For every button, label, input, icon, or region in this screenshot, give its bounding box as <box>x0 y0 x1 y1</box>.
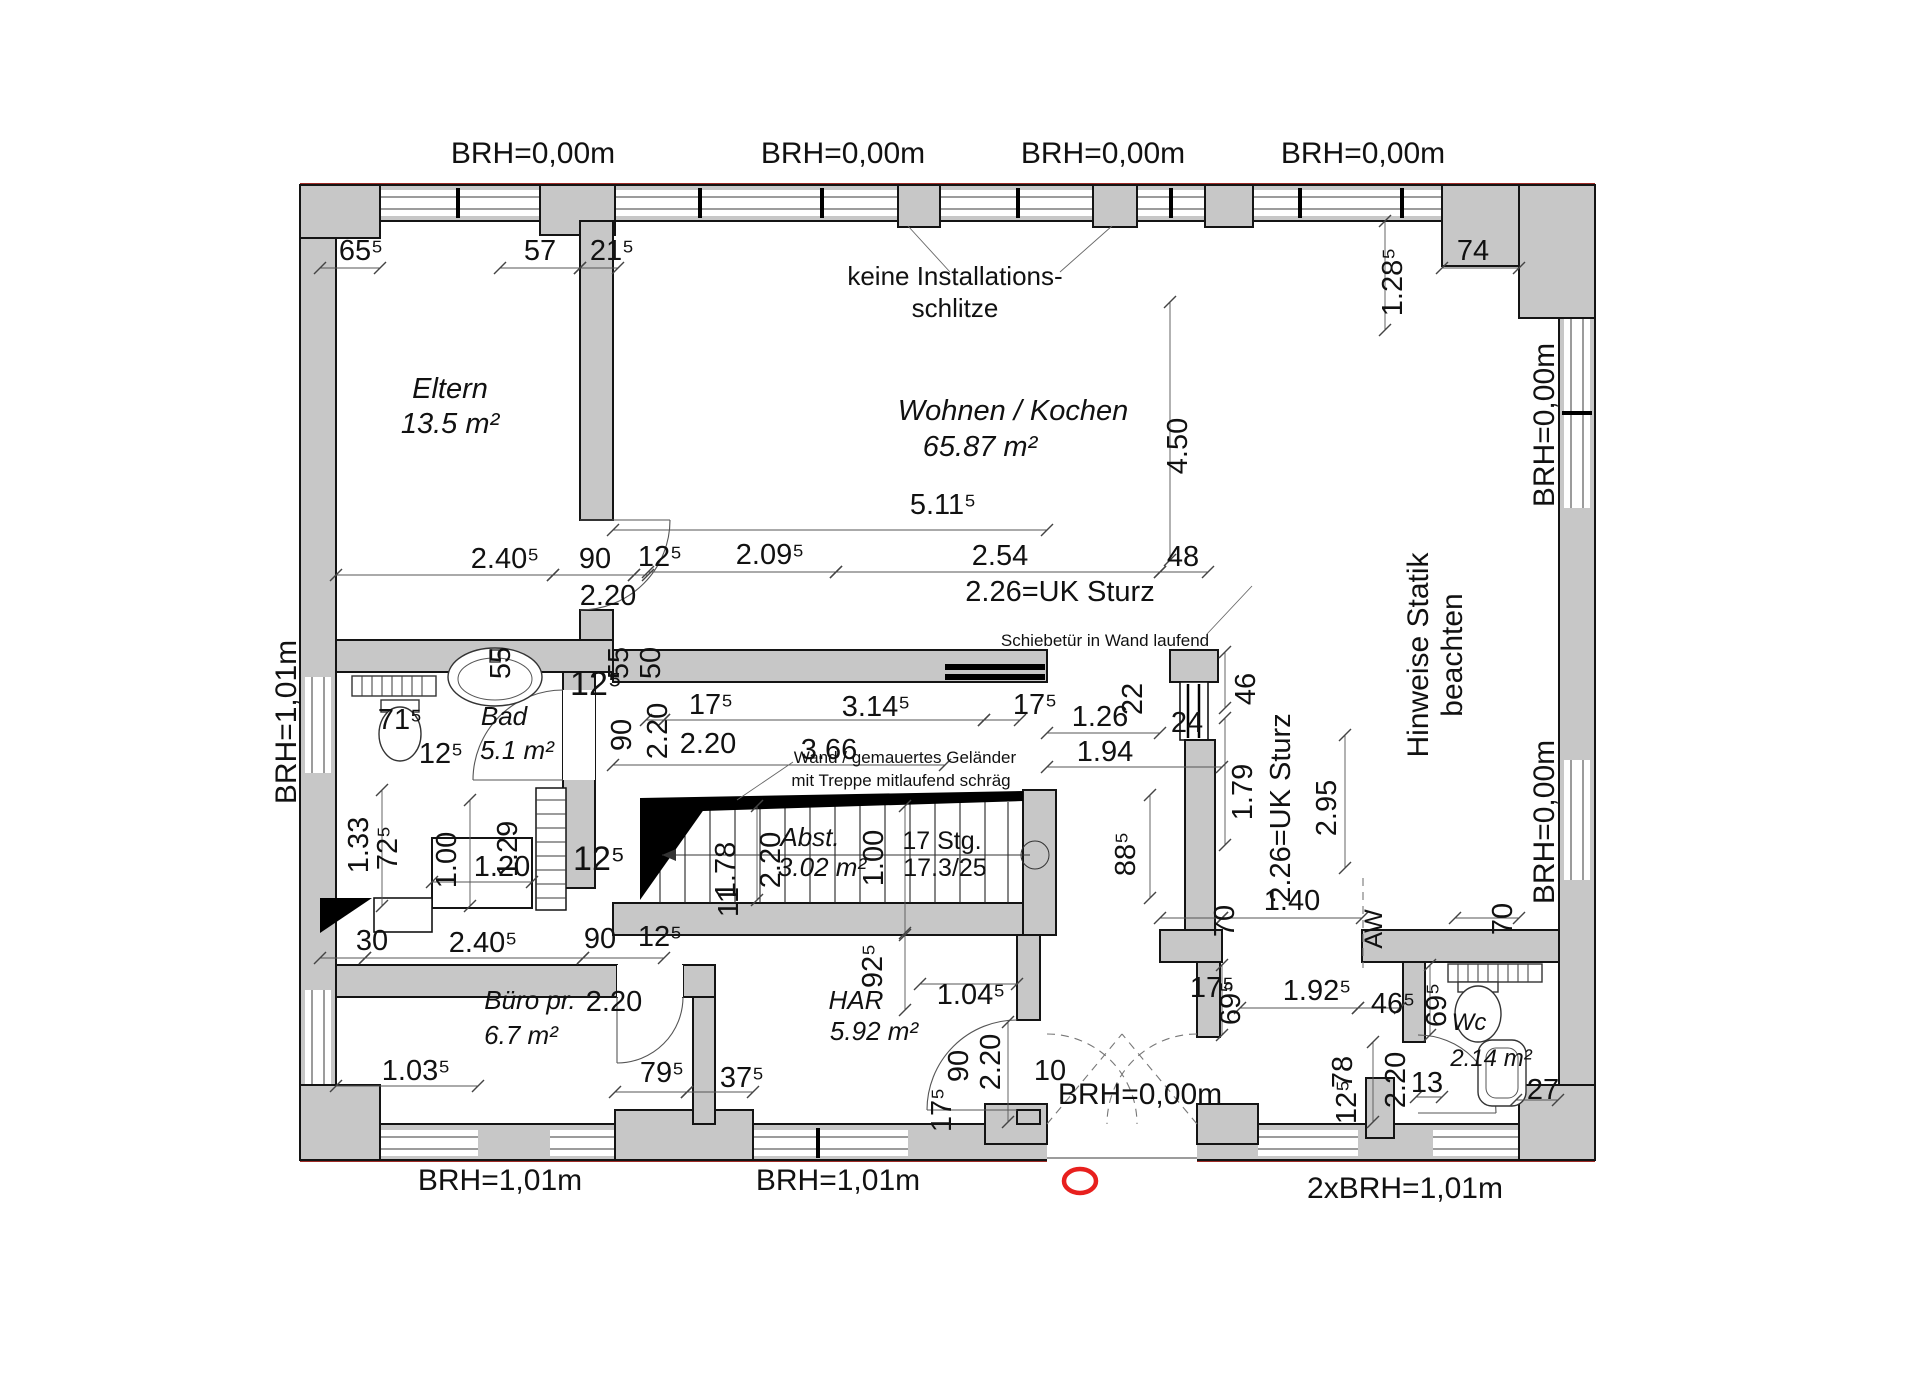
dim-label: 1.03⁵ <box>382 1055 450 1087</box>
room-name-har: HAR <box>829 985 884 1015</box>
room-name-wc: Wc <box>1452 1009 1487 1036</box>
dim-label: 1.04⁵ <box>937 979 1005 1011</box>
dim-label: 50 <box>635 647 667 679</box>
stair-steps-label: 17 Stg. <box>902 827 981 855</box>
dim-label: 1.33 <box>343 817 375 873</box>
note-railing-2: mit Treppe mitlaufend schräg <box>791 771 1010 790</box>
dim-label: 22 <box>1117 683 1149 715</box>
staircase <box>640 791 1049 903</box>
pier-no-slits-2 <box>1093 185 1137 227</box>
room-area-bad: 5.1 m² <box>480 735 555 765</box>
dim-label: 30 <box>356 925 388 957</box>
dim-label: 37⁵ <box>720 1062 764 1094</box>
room-area-buero: 6.7 m² <box>484 1020 559 1050</box>
brh-entrance: BRH=0,00m <box>1058 1078 1222 1111</box>
dim-label: 88⁵ <box>1110 832 1142 876</box>
dim-label: 2.20 <box>586 986 642 1018</box>
dim-label: 24 <box>1171 707 1203 739</box>
dim-label: 17⁵ <box>1013 689 1057 721</box>
dim-label: 2.54 <box>972 540 1028 572</box>
room-name-bad: Bad <box>481 701 529 731</box>
note-no-slits-1: keine Installations- <box>847 261 1062 291</box>
dim-label: 12⁵ <box>638 541 682 573</box>
brh-bottom-right: 2xBRH=1,01m <box>1307 1172 1503 1205</box>
room-name-eltern: Eltern <box>412 373 488 405</box>
dim-label: 90 <box>943 1050 975 1082</box>
dim-label: 10 <box>1034 1055 1066 1087</box>
note-statics-2: beachten <box>1436 593 1469 716</box>
brh-top-2: BRH=0,00m <box>761 137 925 170</box>
dim-label: 12⁵ <box>573 840 625 878</box>
brh-top-4: BRH=0,00m <box>1281 137 1445 170</box>
aw-label: AW <box>1360 909 1388 949</box>
dim-label: 46 <box>1230 673 1262 705</box>
pier-no-slits-1 <box>898 185 940 227</box>
floor-plan-drawing: BRH=0,00m BRH=0,00m BRH=0,00m BRH=0,00m … <box>0 0 1920 1400</box>
room-name-abst: Abst. <box>778 822 839 852</box>
sliding-door-pocket <box>1170 650 1218 682</box>
dim-label: 90 <box>579 543 611 575</box>
dim-label: 1.00 <box>858 830 890 886</box>
brh-left: BRH=1,01m <box>270 640 303 804</box>
dim-label: 2.95 <box>1311 780 1343 836</box>
dim-label: 55 <box>485 647 517 679</box>
dim-label: 17⁵ <box>926 1088 958 1132</box>
room-area-wc: 2.14 m² <box>1449 1045 1532 1072</box>
dim-label: 12⁵ <box>638 921 682 953</box>
dim-label: 2.26=UK Sturz <box>1265 713 1297 902</box>
railing-band <box>640 791 1023 813</box>
floor-plan-canvas: BRH=0,00m BRH=0,00m BRH=0,00m BRH=0,00m … <box>0 0 1920 1400</box>
dim-label: 21⁵ <box>590 235 634 267</box>
note-sliding-door: Schiebetür in Wand laufend <box>1001 631 1209 650</box>
dim-label: 48 <box>1167 541 1199 573</box>
dim-label: 70 <box>1209 905 1241 937</box>
note-statics-1: Hinweise Statik <box>1402 551 1435 757</box>
dim-label: 1.79 <box>1227 764 1259 820</box>
brh-bottom-2: BRH=1,01m <box>756 1164 920 1197</box>
dim-label: 27 <box>1527 1074 1559 1106</box>
dim-label: 2.20 <box>580 580 636 612</box>
wall-wohnen-wc <box>1362 930 1559 962</box>
dim-label: 12⁵ <box>419 738 463 770</box>
red-marker-circle <box>1064 1169 1096 1193</box>
dim-label: 1.92⁵ <box>1283 975 1351 1007</box>
dim-label: 69⁵ <box>1215 981 1247 1025</box>
brh-right-upper: BRH=0,00m <box>1528 343 1561 507</box>
dim-label: 55 <box>603 647 635 679</box>
dim-label: 92⁵ <box>857 944 889 988</box>
wc-radiator <box>1448 964 1542 982</box>
window <box>1253 190 1442 216</box>
dim-label: 1.29 <box>492 821 524 877</box>
brh-bottom-1: BRH=1,01m <box>418 1164 582 1197</box>
brh-right-lower: BRH=0,00m <box>1528 740 1561 904</box>
dim-label: 1.28⁵ <box>1377 248 1409 316</box>
wall-buero-har <box>693 997 715 1124</box>
dim-label: 2.40⁵ <box>471 543 539 575</box>
dim-label: 74 <box>1457 235 1489 267</box>
entrance-opening <box>1047 1122 1197 1162</box>
brh-top-1: BRH=0,00m <box>451 137 615 170</box>
room-name-wohnen: Wohnen / Kochen <box>898 395 1129 427</box>
dim-label: 2.09⁵ <box>736 539 804 571</box>
dim-label: 72⁵ <box>372 826 404 870</box>
bad-radiator <box>352 676 436 696</box>
dim-label: 3.66 <box>801 734 857 766</box>
dim-label: 17⁵ <box>689 689 733 721</box>
dim-label: 79⁵ <box>640 1057 684 1089</box>
dim-label: 2.20 <box>642 703 674 759</box>
dim-label: 1.00 <box>431 832 463 888</box>
dim-label: 2.40⁵ <box>449 927 517 959</box>
wall-har-entry <box>1017 935 1040 1020</box>
room-area-wohnen: 65.87 m² <box>923 431 1039 463</box>
dim-label: 46⁵ <box>1371 988 1415 1020</box>
note-no-slits-2: schlitze <box>912 293 999 323</box>
dim-label: 69⁵ <box>1421 983 1453 1027</box>
brh-top-3: BRH=0,00m <box>1021 137 1185 170</box>
dim-label: 90 <box>606 719 638 751</box>
dim-label: 70 <box>1487 903 1519 935</box>
stair-ratio-label: 17.3/25 <box>903 854 986 882</box>
dim-label: 71⁵ <box>378 704 422 736</box>
window <box>615 190 898 216</box>
dim-label: 90 <box>584 923 616 955</box>
dim-label: 2.26=UK Sturz <box>965 576 1154 608</box>
dim-label: 2.20 <box>680 728 736 760</box>
dim-label: 5.11⁵ <box>910 489 976 521</box>
room-area-har: 5.92 m² <box>830 1016 919 1046</box>
dim-label: 65⁵ <box>339 235 383 267</box>
dim-label: 4.50 <box>1162 418 1194 474</box>
dim-label: 3.14⁵ <box>842 691 910 723</box>
dim-label: 1.94 <box>1077 736 1133 768</box>
room-name-buero: Büro pr. <box>484 985 576 1015</box>
dim-label: 11 <box>713 887 745 917</box>
dim-label: 57 <box>524 235 556 267</box>
dim-label: 1.40 <box>1264 885 1320 917</box>
dim-label: 2.20 <box>755 832 787 888</box>
room-area-eltern: 13.5 m² <box>401 408 501 440</box>
dim-label: 13 <box>1411 1067 1443 1099</box>
dim-label: 2.20 <box>975 1034 1007 1090</box>
dim-label: 2.20 <box>1380 1052 1412 1108</box>
dim-label: 12⁵ <box>1331 1080 1363 1124</box>
room-area-abst: 3.02 m² <box>778 852 867 882</box>
